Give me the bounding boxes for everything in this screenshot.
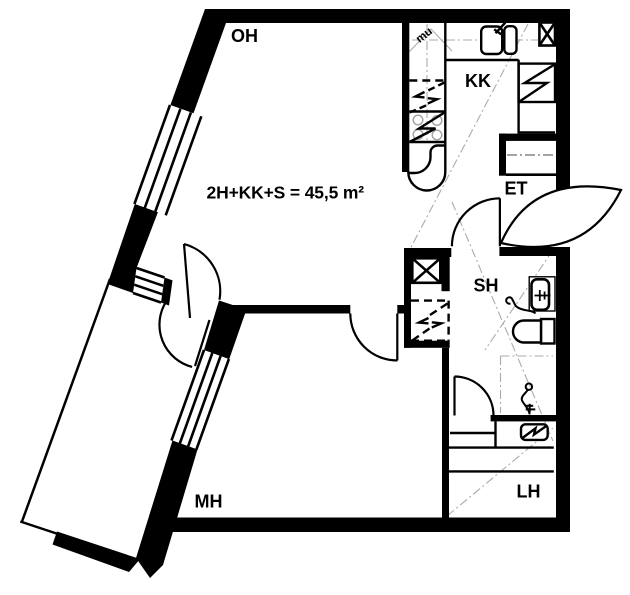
svg-text:2H+KK+S = 45,5 m²: 2H+KK+S = 45,5 m² bbox=[207, 182, 365, 202]
svg-text:MH: MH bbox=[195, 492, 223, 512]
svg-text:LH: LH bbox=[517, 482, 541, 502]
svg-text:ET: ET bbox=[505, 178, 528, 198]
svg-text:OH: OH bbox=[231, 26, 258, 46]
svg-text:KK: KK bbox=[465, 71, 491, 91]
svg-text:SH: SH bbox=[474, 276, 499, 296]
